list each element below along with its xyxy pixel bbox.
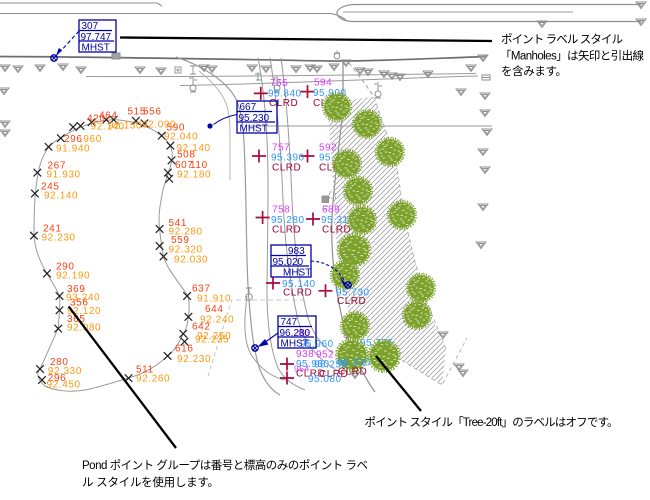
- svg-text:755: 755: [270, 78, 288, 89]
- svg-text:CLRD: CLRD: [338, 367, 367, 378]
- svg-text:93.240: 93.240: [66, 293, 100, 304]
- svg-text:92.260: 92.260: [136, 374, 170, 385]
- svg-text:92.190: 92.190: [56, 271, 90, 282]
- svg-text:97.747: 97.747: [81, 32, 112, 43]
- svg-text:91.910: 91.910: [197, 294, 231, 305]
- svg-text:を含みます。: を含みます。: [501, 64, 567, 78]
- svg-text:92.040: 92.040: [164, 132, 198, 143]
- svg-text:92.230: 92.230: [177, 354, 211, 365]
- svg-text:556: 556: [143, 107, 162, 118]
- svg-text:644: 644: [205, 304, 224, 315]
- svg-text:MHST: MHST: [240, 124, 268, 135]
- svg-text:91.940: 91.940: [56, 144, 90, 155]
- svg-text:92.450: 92.450: [47, 380, 81, 391]
- svg-text:96.280: 96.280: [280, 328, 311, 339]
- svg-text:307: 307: [82, 21, 99, 32]
- svg-text:689: 689: [322, 205, 340, 216]
- svg-text:92.330: 92.330: [48, 366, 82, 377]
- svg-text:「Manholes」は矢印と引出線: 「Manholes」は矢印と引出線: [500, 49, 645, 63]
- svg-text:MHST: MHST: [283, 268, 311, 279]
- svg-text:667: 667: [240, 102, 257, 113]
- svg-text:983: 983: [288, 246, 305, 257]
- svg-text:92.140: 92.140: [177, 143, 211, 154]
- svg-text:92.240: 92.240: [200, 315, 234, 326]
- svg-text:CLRD: CLRD: [337, 296, 366, 307]
- svg-text:91.930: 91.930: [47, 170, 81, 181]
- svg-text:ポイント スタイル「Tree-20ft」のラベルはオフです。: ポイント スタイル「Tree-20ft」のラベルはオフです。: [365, 416, 619, 429]
- svg-text:92.280: 92.280: [169, 227, 203, 238]
- svg-text:95.080: 95.080: [308, 374, 342, 385]
- svg-text:ポイント ラベル スタイル: ポイント ラベル スタイル: [501, 33, 623, 46]
- svg-text:92.030: 92.030: [174, 255, 208, 266]
- svg-text:92.090: 92.090: [142, 120, 176, 131]
- svg-text:CLRD: CLRD: [322, 225, 351, 236]
- svg-text:95.230: 95.230: [239, 113, 270, 124]
- svg-text:CLRD: CLRD: [272, 163, 301, 174]
- svg-text:ル スタイルを使用します。: ル スタイルを使用します。: [82, 475, 219, 489]
- svg-text:95.020: 95.020: [273, 257, 304, 268]
- svg-text:Pond ポイント グループは番号と標高のみのポイント ラベ: Pond ポイント グループは番号と標高のみのポイント ラベ: [82, 458, 368, 472]
- svg-text:92.140: 92.140: [44, 191, 78, 202]
- svg-text:92.180: 92.180: [177, 170, 211, 181]
- svg-text:758: 758: [272, 205, 290, 216]
- svg-text:594: 594: [314, 78, 332, 89]
- svg-text:747: 747: [281, 317, 298, 328]
- svg-text:CLRD: CLRD: [283, 288, 312, 299]
- svg-text:616: 616: [175, 344, 194, 355]
- svg-text:MHST: MHST: [281, 339, 309, 350]
- svg-text:92.150: 92.150: [108, 121, 142, 132]
- svg-text:92.230: 92.230: [42, 233, 76, 244]
- svg-text:MHST: MHST: [82, 43, 110, 54]
- svg-text:CLRD: CLRD: [269, 98, 298, 109]
- svg-text:CLRD: CLRD: [272, 225, 301, 236]
- svg-text:92.235: 92.235: [195, 335, 229, 346]
